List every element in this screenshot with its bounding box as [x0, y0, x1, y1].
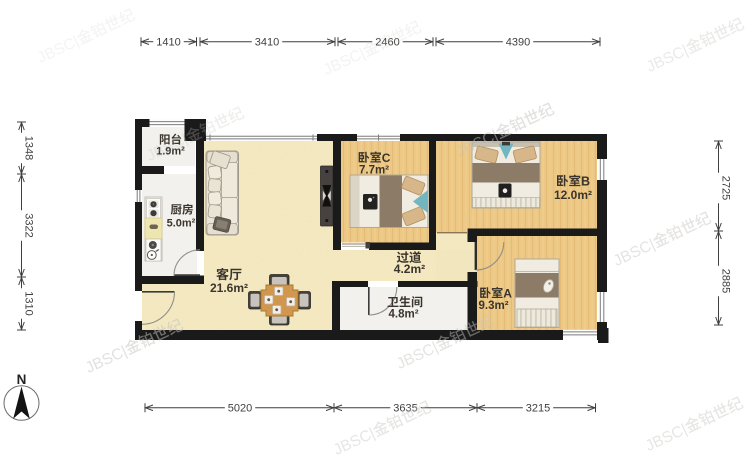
svg-text:9.3m²: 9.3m²	[479, 300, 509, 312]
svg-text:5020: 5020	[228, 403, 252, 415]
svg-text:C: C	[382, 151, 391, 165]
svg-text:3215: 3215	[526, 403, 550, 415]
svg-text:B: B	[581, 174, 590, 188]
svg-text:2885: 2885	[719, 269, 731, 293]
svg-text:1310: 1310	[22, 291, 34, 315]
svg-text:4390: 4390	[506, 37, 530, 49]
svg-text:4.8m²: 4.8m²	[389, 309, 419, 321]
svg-text:7.7m²: 7.7m²	[359, 165, 389, 177]
svg-text:N: N	[17, 372, 27, 387]
svg-text:3322: 3322	[22, 213, 34, 237]
svg-text:12.0m²: 12.0m²	[554, 188, 592, 202]
svg-text:4.2m²: 4.2m²	[394, 262, 425, 276]
svg-text:1410: 1410	[156, 37, 180, 49]
svg-text:21.6m²: 21.6m²	[210, 281, 248, 295]
svg-text:2725: 2725	[719, 176, 731, 200]
svg-text:5.0m²: 5.0m²	[167, 217, 196, 229]
svg-text:A: A	[503, 286, 512, 300]
svg-text:3410: 3410	[255, 37, 279, 49]
svg-text:1348: 1348	[22, 136, 34, 160]
